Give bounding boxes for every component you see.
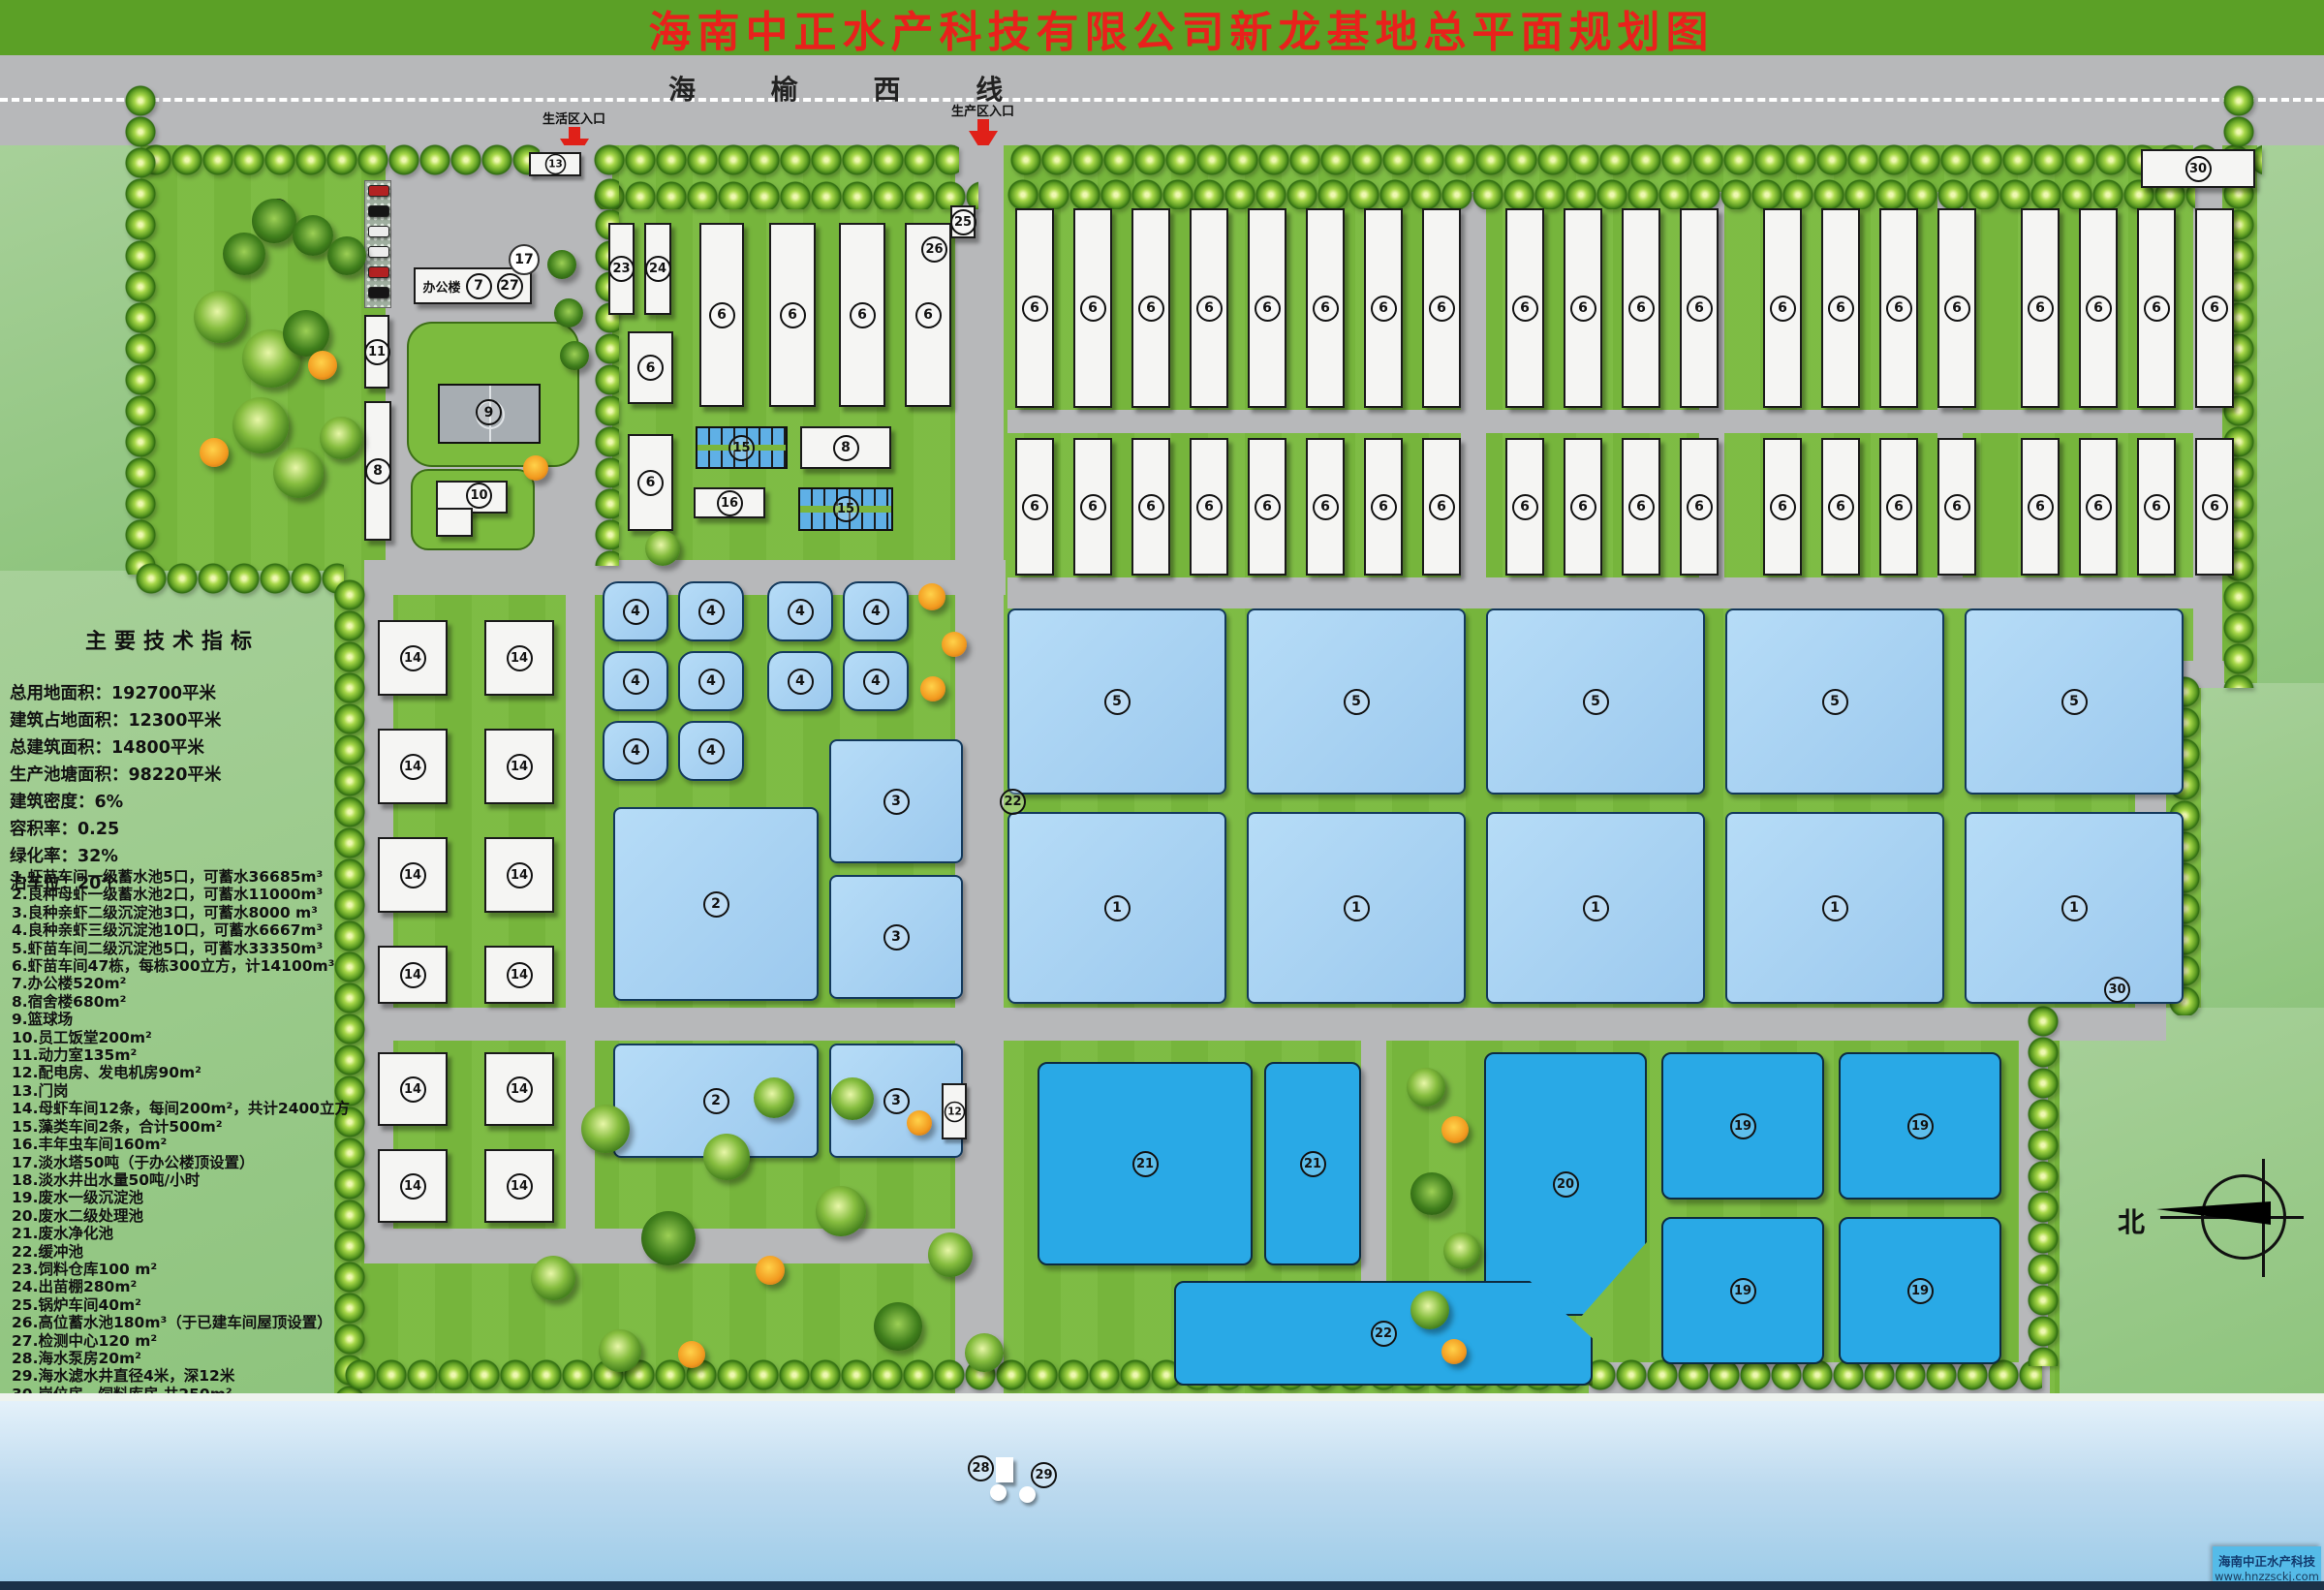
tree xyxy=(581,1105,630,1153)
shrimp-shed-row-1: 6 xyxy=(1248,208,1286,408)
mother-shrimp-ws-number: 14 xyxy=(400,1076,426,1103)
shed-6: 6 xyxy=(628,434,673,531)
legend-item: 1.虾苗车间一级蓄水池5口，可蓄水36685m³ xyxy=(12,868,350,886)
storage-pond-1-number: 1 xyxy=(1822,895,1848,921)
legend-item: 16.丰年虫车间160m² xyxy=(12,1136,350,1153)
mother-shrimp-ws: 14 xyxy=(484,946,554,1004)
shed-number: 6 xyxy=(1255,296,1281,322)
otree xyxy=(920,676,945,701)
palm xyxy=(554,298,583,327)
settling-pond-3-number: 4 xyxy=(623,738,649,764)
gate-house-number: 13 xyxy=(544,154,566,175)
otree xyxy=(907,1110,932,1136)
settling-pond-3-number: 4 xyxy=(623,599,649,625)
shrimp-shed-row-1: 6 xyxy=(1505,208,1544,408)
indicator-line: 生产池塘面积：98220平米 xyxy=(10,762,260,789)
shed-number: 6 xyxy=(2028,296,2054,322)
shed-number: 6 xyxy=(1022,494,1048,520)
tree xyxy=(645,531,680,566)
indicator-lines: 总用地面积：192700平米建筑占地面积：12300平米总建筑面积：14800平… xyxy=(10,680,260,897)
dormitory-1: 8 xyxy=(364,401,391,541)
mother-shrimp-ws: 14 xyxy=(378,1052,448,1126)
legend-item: 24.出苗棚280m² xyxy=(12,1278,350,1295)
mother-shrimp-ws-number: 14 xyxy=(400,862,426,889)
shed-number: 6 xyxy=(1196,296,1223,322)
settling-pond-3: 4 xyxy=(603,721,668,781)
settling-pond-3-number: 4 xyxy=(698,669,725,695)
dormitory-1-number: 8 xyxy=(365,458,391,484)
legend-item: 8.宿舍楼680m² xyxy=(12,993,350,1011)
storage-pond-1-number: 1 xyxy=(1583,895,1609,921)
storage-pond-5: 5 xyxy=(1486,608,1705,795)
waste-settle-pond: 19 xyxy=(1661,1217,1824,1364)
mother-shrimp-ws: 14 xyxy=(484,729,554,804)
mother-shrimp-ws-number: 14 xyxy=(507,862,533,889)
parking-lot xyxy=(364,180,391,308)
mother-shrimp-ws-number: 14 xyxy=(400,962,426,988)
otree xyxy=(918,583,945,610)
legend-item: 22.缓冲池 xyxy=(12,1243,350,1261)
settling-pond-3: 4 xyxy=(843,651,909,711)
shed-number: 6 xyxy=(2086,296,2112,322)
storage-pond-1: 1 xyxy=(1486,812,1705,1004)
purify-pond-number: 21 xyxy=(1300,1151,1326,1177)
road-h-b xyxy=(366,1008,2166,1041)
shed-number: 6 xyxy=(1429,494,1455,520)
mother-shrimp-ws: 14 xyxy=(378,729,448,804)
gate-house: 13 xyxy=(529,152,581,176)
tree xyxy=(1407,1068,1445,1107)
shed-number: 6 xyxy=(1770,296,1796,322)
indicator-line: 总建筑面积：14800平米 xyxy=(10,734,260,762)
otree xyxy=(1441,1339,1467,1364)
legend-item: 9.篮球场 xyxy=(12,1011,350,1028)
shrimp-shed-row-1: 6 xyxy=(1763,208,1802,408)
dormitory-2-number: 8 xyxy=(833,435,859,461)
bottom-border xyxy=(0,1581,2324,1590)
post-feed-store: 30 xyxy=(2141,149,2255,188)
indicator-heading: 主要技术指标 xyxy=(85,624,260,655)
shed-6-number: 6 xyxy=(637,470,664,496)
legend-item: 28.海水泵房20m² xyxy=(12,1350,350,1367)
tree xyxy=(194,291,246,343)
algae-workshop: 15 xyxy=(696,426,788,469)
sea: 南 中 国 海 xyxy=(0,1401,2324,1590)
shoreline xyxy=(0,1393,2324,1401)
shed-number: 6 xyxy=(1628,296,1655,322)
algae-workshop-number: 15 xyxy=(833,496,859,522)
legend-item: 6.虾苗车间47栋，每栋300立方，计14100m³ xyxy=(12,957,350,975)
mother-shrimp-ws: 14 xyxy=(378,946,448,1004)
otree xyxy=(523,455,548,481)
shrimp-shed-row-1: 6 xyxy=(1073,208,1112,408)
shed-number: 6 xyxy=(1138,494,1164,520)
fry-outlet-shed-number: 24 xyxy=(645,256,671,282)
storage-pond-5-number: 5 xyxy=(1822,689,1848,715)
road-shed-gap xyxy=(1461,192,1486,604)
bush-row xyxy=(594,141,959,180)
legend-item: 26.高位蓄水池180m³（于已建车间屋顶设置） xyxy=(12,1314,350,1331)
shrimp-shed-row-1: 6 xyxy=(2137,208,2176,408)
tree xyxy=(965,1333,1004,1372)
arrow-down-icon xyxy=(977,119,989,131)
shrimp-shed-row-2: 6 xyxy=(1364,438,1403,576)
shed-number: 6 xyxy=(1512,494,1538,520)
otree xyxy=(200,438,229,467)
shed-number: 6 xyxy=(2144,296,2170,322)
shrimp-shed-row-1: 6 xyxy=(1821,208,1860,408)
bush-col xyxy=(2025,1006,2065,1366)
legend-item: 3.良种亲虾二级沉淀池3口，可蓄水8000 m³ xyxy=(12,904,350,921)
shrimp-shed-row-2: 6 xyxy=(1821,438,1860,576)
sea-pump-marker: 28 xyxy=(968,1455,994,1481)
purify-pond-number: 21 xyxy=(1132,1151,1159,1177)
rooftop-tank-marker: 26 xyxy=(921,236,947,263)
car xyxy=(368,205,389,217)
shed-number: 6 xyxy=(1429,296,1455,322)
car xyxy=(368,185,389,197)
bush-row xyxy=(1010,141,2262,180)
otree xyxy=(678,1341,705,1368)
entrance-living-label: 生活区入口 xyxy=(542,109,605,127)
legend-list: 1.虾苗车间一级蓄水池5口，可蓄水36685m³2.良种母虾一级蓄水池2口，可蓄… xyxy=(12,868,350,1403)
shrimp-shed-row-2: 6 xyxy=(1131,438,1170,576)
waste-settle-pond-number: 19 xyxy=(1730,1113,1756,1139)
shrimp-shed-row-2: 6 xyxy=(2021,438,2060,576)
shed-number: 6 xyxy=(1138,296,1164,322)
palm xyxy=(252,199,296,243)
storage-pond-5-number: 5 xyxy=(2061,689,2088,715)
storage-pond-1-number: 1 xyxy=(2061,895,2088,921)
feed-warehouse: 23 xyxy=(608,223,635,315)
settling-pond-2-number: 3 xyxy=(883,924,910,951)
shrimp-shed-row-2: 6 xyxy=(1422,438,1461,576)
mother-shrimp-ws-number: 14 xyxy=(507,1076,533,1103)
mother-shrimp-ws-number: 14 xyxy=(507,1173,533,1200)
storage-pond-1-number: 1 xyxy=(1104,895,1131,921)
shrimp-shed-row-1: 6 xyxy=(1306,208,1345,408)
title-band: 海南中正水产科技有限公司新龙基地总平面规划图 xyxy=(0,0,2324,55)
office-label: 办公楼 xyxy=(422,277,460,296)
legend-item: 13.门岗 xyxy=(12,1082,350,1100)
indicator-line: 总用地面积：192700平米 xyxy=(10,680,260,707)
purify-pond: 21 xyxy=(1038,1062,1253,1265)
brine-shrimp-workshop: 16 xyxy=(694,487,765,518)
storage-pond-5-number: 5 xyxy=(1104,689,1131,715)
road-shed-2 xyxy=(1007,577,2195,608)
shrimp-shed-row-2: 6 xyxy=(1879,438,1918,576)
shed-6: 6 xyxy=(699,223,744,407)
mother-shrimp-ws: 14 xyxy=(484,837,554,913)
purify-pond: 21 xyxy=(1264,1062,1361,1265)
boiler-room: 25 xyxy=(950,205,976,238)
road-shed-1 xyxy=(1007,410,2195,433)
indicator-line: 建筑占地面积：12300平米 xyxy=(10,707,260,734)
palm xyxy=(874,1302,922,1351)
storage-pond-1: 1 xyxy=(1725,812,1944,1004)
tree xyxy=(273,448,324,498)
legend-item: 11.动力室135m² xyxy=(12,1046,350,1064)
mother-shrimp-ws: 14 xyxy=(378,1149,448,1223)
tree xyxy=(1443,1232,1480,1269)
bush-row xyxy=(136,560,344,597)
tree xyxy=(703,1134,750,1180)
feed-warehouse-number: 23 xyxy=(608,256,635,282)
settling-pond-2-number: 3 xyxy=(883,1088,910,1114)
settling-pond-3: 4 xyxy=(603,651,668,711)
legend-item: 21.废水净化池 xyxy=(12,1225,350,1242)
shrimp-shed-row-1: 6 xyxy=(1131,208,1170,408)
shrimp-shed-row-1: 6 xyxy=(1622,208,1660,408)
site-plan: 海南中正水产科技有限公司新龙基地总平面规划图 海 榆 西 线 生活区入口 生产区… xyxy=(0,0,2324,1590)
palm xyxy=(560,341,589,370)
shed-number: 6 xyxy=(1255,494,1281,520)
palm xyxy=(223,233,265,275)
generator-room-number: 12 xyxy=(944,1101,965,1122)
shed-number: 6 xyxy=(1828,494,1854,520)
mother-shrimp-ws-number: 14 xyxy=(507,962,533,988)
tree xyxy=(831,1077,874,1120)
outside-green-left xyxy=(0,145,140,571)
shrimp-shed-row-1: 6 xyxy=(1015,208,1054,408)
storage-pond-2-number: 2 xyxy=(703,1088,729,1114)
legend-item: 2.良种母虾一级蓄水池2口，可蓄水11000m³ xyxy=(12,886,350,903)
mother-shrimp-ws: 14 xyxy=(484,1052,554,1126)
shrimp-shed-row-2: 6 xyxy=(1015,438,1054,576)
shed-number: 6 xyxy=(2028,494,2054,520)
waste-settle-pond-number: 19 xyxy=(1907,1113,1934,1139)
legend-item: 29.海水滤水井直径4米，深12米 xyxy=(12,1367,350,1385)
shed-number: 6 xyxy=(1313,296,1339,322)
shrimp-shed-row-2: 6 xyxy=(2137,438,2176,576)
fry-outlet-shed: 24 xyxy=(644,223,671,315)
otree xyxy=(942,632,967,657)
shrimp-shed-row-2: 6 xyxy=(1505,438,1544,576)
indicator-line: 绿化率：32% xyxy=(10,843,260,870)
shrimp-shed-row-2: 6 xyxy=(1564,438,1602,576)
watermark-company: 海南中正水产科技 xyxy=(2218,1551,2315,1570)
shrimp-shed-row-1: 6 xyxy=(2021,208,2060,408)
buffer-pond: 22 xyxy=(1174,1281,1593,1386)
shed-number: 6 xyxy=(1944,296,1970,322)
shed-number: 6 xyxy=(1687,296,1713,322)
shrimp-shed-row-1: 6 xyxy=(1564,208,1602,408)
shed-6-number: 6 xyxy=(850,302,876,328)
shrimp-shed-row-1: 6 xyxy=(1190,208,1228,408)
tree xyxy=(232,397,289,453)
storage-pond-5-number: 5 xyxy=(1344,689,1370,715)
legend-item: 19.废水一级沉淀池 xyxy=(12,1189,350,1206)
storage-pond-5: 5 xyxy=(1247,608,1466,795)
legend-item: 17.淡水塔50吨（于办公楼顶设置） xyxy=(12,1154,350,1171)
otree xyxy=(1441,1116,1469,1143)
canteen-marker: 10 xyxy=(466,483,492,509)
mother-shrimp-ws: 14 xyxy=(378,837,448,913)
shed-number: 6 xyxy=(1628,494,1655,520)
tree xyxy=(816,1186,866,1236)
settling-pond-3-number: 4 xyxy=(623,669,649,695)
shed-number: 6 xyxy=(1371,494,1397,520)
shed-6-number: 6 xyxy=(709,302,735,328)
entrance-production-label: 生产区入口 xyxy=(951,101,1014,119)
mother-shrimp-ws-number: 14 xyxy=(507,754,533,780)
palm xyxy=(1410,1172,1453,1215)
shed-number: 6 xyxy=(2086,494,2112,520)
settling-pond-3: 4 xyxy=(767,651,833,711)
shed-number: 6 xyxy=(1770,494,1796,520)
canteen-building-wing xyxy=(436,508,473,537)
shrimp-shed-row-2: 6 xyxy=(1937,438,1976,576)
filter-well xyxy=(990,1484,1007,1501)
settling-pond-3: 4 xyxy=(678,651,744,711)
legend-item: 25.锅炉车间40m² xyxy=(12,1296,350,1314)
tree xyxy=(1410,1291,1449,1329)
shed-6: 6 xyxy=(769,223,816,407)
shed-6-number: 6 xyxy=(780,302,806,328)
tree xyxy=(754,1077,794,1118)
shed-number: 6 xyxy=(1022,296,1048,322)
mother-shrimp-ws-number: 14 xyxy=(400,754,426,780)
storage-pond-1: 1 xyxy=(1007,812,1226,1004)
outside-green-right-mid xyxy=(2201,683,2324,1008)
shrimp-shed-row-2: 6 xyxy=(1622,438,1660,576)
waste-settle-pond: 19 xyxy=(1839,1052,2001,1200)
testing-center-number: 27 xyxy=(497,273,523,299)
shed-number: 6 xyxy=(1570,296,1596,322)
indicator-panel: 主要技术指标 总用地面积：192700平米建筑占地面积：12300平米总建筑面积… xyxy=(10,624,260,897)
highway: 海 榆 西 线 xyxy=(0,55,2324,145)
shrimp-shed-row-2: 6 xyxy=(2079,438,2118,576)
office-number: 7 xyxy=(466,273,492,299)
palm xyxy=(641,1211,696,1265)
power-room-number: 11 xyxy=(364,339,390,365)
bush-row xyxy=(594,178,978,209)
shrimp-shed-row-1: 6 xyxy=(2195,208,2234,408)
office-building: 办公楼 7 27 17 xyxy=(414,267,532,304)
shrimp-shed-row-2: 6 xyxy=(1306,438,1345,576)
shed-6: 6 xyxy=(839,223,885,407)
settling-pond-2: 3 xyxy=(829,875,963,999)
storage-pond-1-number: 1 xyxy=(1344,895,1370,921)
power-room: 11 xyxy=(364,315,389,389)
indicator-line: 建筑密度：6% xyxy=(10,789,260,816)
shed-number: 6 xyxy=(1080,494,1106,520)
storage-pond-5: 5 xyxy=(1007,608,1226,795)
shed-number: 6 xyxy=(1886,494,1912,520)
mother-shrimp-ws-number: 14 xyxy=(507,645,533,671)
palm xyxy=(293,215,333,256)
north-label: 北 xyxy=(2118,1201,2145,1240)
shed-number: 6 xyxy=(1371,296,1397,322)
mother-shrimp-ws: 14 xyxy=(378,620,448,696)
waste-settle-pond: 19 xyxy=(1839,1217,2001,1364)
treat-pond-2-number: 20 xyxy=(1553,1171,1579,1198)
legend-item: 20.废水二级处理池 xyxy=(12,1207,350,1225)
settling-pond-3-number: 4 xyxy=(788,599,814,625)
settling-pond-3: 4 xyxy=(678,721,744,781)
storage-pond-5-number: 5 xyxy=(1583,689,1609,715)
shrimp-shed-row-2: 6 xyxy=(1248,438,1286,576)
basketball-court-marker: 9 xyxy=(476,399,502,425)
settling-pond-2: 3 xyxy=(829,739,963,863)
compass: 北 xyxy=(2112,1159,2306,1277)
tree xyxy=(599,1329,641,1372)
shed-number: 6 xyxy=(1886,296,1912,322)
car xyxy=(368,287,389,298)
storage-pond-2: 2 xyxy=(613,807,819,1001)
shed-6-number: 6 xyxy=(637,355,664,381)
tree xyxy=(531,1256,575,1300)
legend-item: 14.母虾车间12条，每间200m²，共计2400立方 xyxy=(12,1100,350,1117)
waste-settle-pond-number: 19 xyxy=(1907,1278,1934,1304)
palm xyxy=(327,236,366,275)
shrimp-shed-row-2: 6 xyxy=(1190,438,1228,576)
shed-6: 6 xyxy=(628,331,673,404)
storage-pond-2-number: 2 xyxy=(703,891,729,918)
storage-pond-5: 5 xyxy=(1725,608,1944,795)
palm xyxy=(547,250,576,279)
mother-shrimp-ws: 14 xyxy=(484,1149,554,1223)
settling-pond-3: 4 xyxy=(678,581,744,641)
outside-green-right xyxy=(2257,145,2324,683)
shrimp-shed-row-1: 6 xyxy=(1937,208,1976,408)
settling-pond-3-number: 4 xyxy=(788,669,814,695)
filter-well-marker: 29 xyxy=(1031,1462,1057,1488)
buffer-pond-number: 22 xyxy=(1371,1321,1397,1347)
settling-pond-3-number: 4 xyxy=(698,738,725,764)
legend-item: 23.饲料仓库100 m² xyxy=(12,1261,350,1278)
shrimp-shed-row-2: 6 xyxy=(1073,438,1112,576)
otree xyxy=(756,1256,785,1285)
shed-number: 6 xyxy=(1687,494,1713,520)
mother-shrimp-ws-number: 14 xyxy=(400,1173,426,1200)
shed-number: 6 xyxy=(2202,494,2228,520)
shrimp-shed-row-1: 6 xyxy=(2079,208,2118,408)
legend-item: 10.员工饭堂200m² xyxy=(12,1029,350,1046)
shrimp-shed-row-2: 6 xyxy=(1680,438,1719,576)
palm xyxy=(283,310,329,357)
page-title: 海南中正水产科技有限公司新龙基地总平面规划图 xyxy=(610,0,1715,59)
legend-item: 15.藻类车间2条，合计500m² xyxy=(12,1118,350,1136)
legend-item: 12.配电房、发电机房90m² xyxy=(12,1064,350,1081)
shed-number: 6 xyxy=(1080,296,1106,322)
highway-centerline xyxy=(0,98,2324,102)
waste-settle-pond-number: 19 xyxy=(1730,1278,1756,1304)
car xyxy=(368,266,389,278)
compass-arrow-icon xyxy=(2156,1201,2271,1225)
shrimp-shed-row-1: 6 xyxy=(1422,208,1461,408)
settling-pond-3-number: 4 xyxy=(863,599,889,625)
shed-number: 6 xyxy=(1313,494,1339,520)
generator-room: 12 xyxy=(942,1083,967,1139)
legend-item: 4.良种亲虾三级沉淀池10口，可蓄水6667m³ xyxy=(12,921,350,939)
legend-item: 18.淡水井出水量50吨/小时 xyxy=(12,1171,350,1189)
legend-item: 5.虾苗车间二级沉淀池5口，可蓄水33350m³ xyxy=(12,940,350,957)
algae-workshop-number: 15 xyxy=(728,435,755,461)
mother-shrimp-ws-number: 14 xyxy=(400,645,426,671)
settling-pond-3-number: 4 xyxy=(698,599,725,625)
shrimp-shed-row-1: 6 xyxy=(1680,208,1719,408)
water-tower-marker: 17 xyxy=(509,244,540,275)
shed-number: 6 xyxy=(1570,494,1596,520)
arrow-down-icon xyxy=(569,127,580,139)
legend-item: 7.办公楼520m² xyxy=(12,975,350,992)
settling-pond-3-number: 4 xyxy=(863,669,889,695)
shed-6-number: 6 xyxy=(915,302,942,328)
shed-number: 6 xyxy=(1196,494,1223,520)
bush-row xyxy=(140,141,540,180)
brine-shrimp-workshop-number: 16 xyxy=(717,490,743,516)
